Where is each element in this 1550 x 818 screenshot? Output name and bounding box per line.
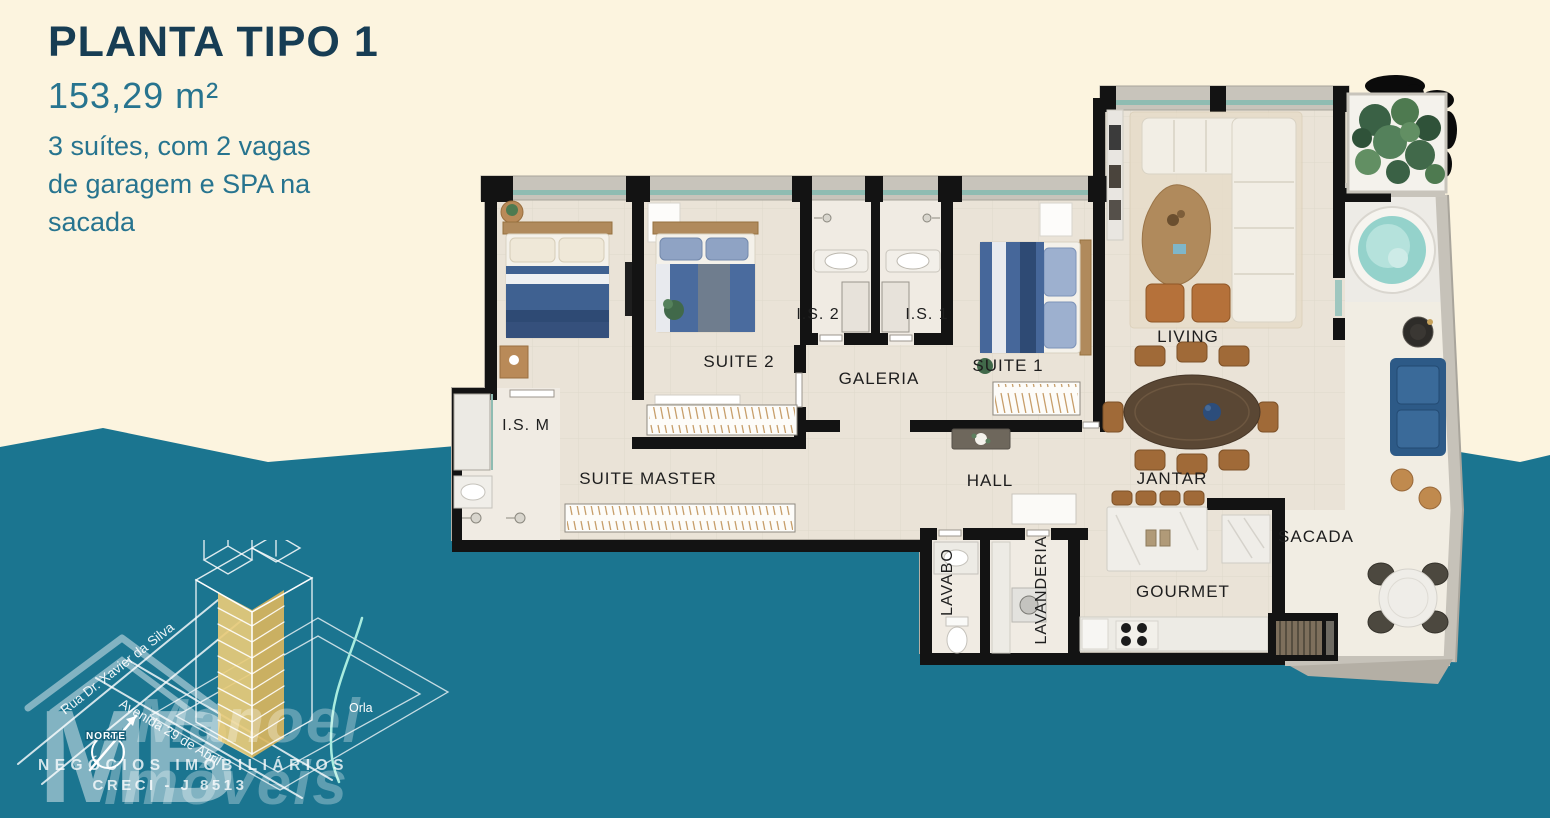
room-label-sacada: SACADA: [1278, 527, 1354, 546]
shower: [454, 394, 490, 470]
description: 3 suítes, com 2 vagas de garagem e SPA n…: [48, 127, 468, 241]
room-label-living: LIVING: [1157, 327, 1219, 346]
decor-bowl: [1203, 403, 1221, 421]
shelf: [655, 395, 740, 404]
tv-panel: [625, 262, 632, 316]
counter: [992, 542, 1010, 653]
toilet: [947, 627, 967, 653]
room-label-is1: I.S. 1: [905, 306, 948, 323]
description-line-1: 3 suítes, com 2 vagas: [48, 127, 468, 165]
room-label-suite-master: SUITE MASTER: [579, 469, 717, 488]
room-label-jantar: JANTAR: [1137, 469, 1208, 488]
room-label-suite-1: SUITE 1: [972, 356, 1043, 375]
grill: [1276, 621, 1322, 655]
description-line-3: sacada: [48, 203, 468, 241]
sink: [461, 484, 485, 500]
bed-headboard: [503, 222, 612, 234]
room-label-galeria: GALERIA: [839, 369, 920, 388]
title-block: PLANTA TIPO 1 153,29 m² 3 suítes, com 2 …: [48, 18, 468, 241]
tagline: NEGÓCIOS IMOBILIÁRIOS: [38, 756, 349, 774]
room-label-lavanderia: LAVANDERIA: [1033, 536, 1050, 645]
floor-plan: SUITE MASTER I.S. M SUITE 2 I.S. 2 I.S. …: [440, 70, 1490, 695]
balcony-glass-door: [1335, 280, 1342, 316]
dining-table: [1124, 375, 1260, 449]
grill-alcove: [1268, 613, 1338, 661]
room-label-is2: I.S. 2: [796, 306, 839, 323]
shower: [842, 282, 869, 332]
area-value: 153,29 m²: [48, 75, 468, 117]
bed-headboard: [653, 222, 758, 234]
leather-chair: [1146, 284, 1184, 322]
island-sink: [1146, 530, 1156, 546]
room-label-ism: I.S. M: [502, 417, 550, 434]
fridge: [1082, 619, 1108, 649]
watermark-line-1: Manoel: [136, 687, 362, 756]
page-title: PLANTA TIPO 1: [48, 18, 468, 67]
wood-stool: [1391, 469, 1413, 491]
wall-art: [1040, 203, 1072, 236]
room-label-lavabo: LAVABO: [939, 548, 956, 616]
living-furniture: [1107, 110, 1302, 328]
hall-cabinet: [1012, 494, 1076, 524]
balcony-dining-set: [1368, 563, 1448, 633]
creci-number: CRECI - J 8513: [93, 777, 248, 794]
compass-label: NORTE: [86, 731, 126, 742]
room-label-hall: HALL: [967, 471, 1014, 490]
sofa-vertical: [1232, 118, 1296, 322]
description-line-2: de garagem e SPA na: [48, 165, 468, 203]
room-label-suite-2: SUITE 2: [703, 352, 774, 371]
plant-icon: [506, 204, 518, 216]
watermark: Manoel Imóveis: [104, 687, 362, 818]
leather-chair: [1192, 284, 1230, 322]
wood-stool: [1419, 487, 1441, 509]
room-label-gourmet: GOURMET: [1136, 582, 1230, 601]
island-sink: [1160, 530, 1170, 546]
bed-headboard: [1080, 240, 1091, 355]
